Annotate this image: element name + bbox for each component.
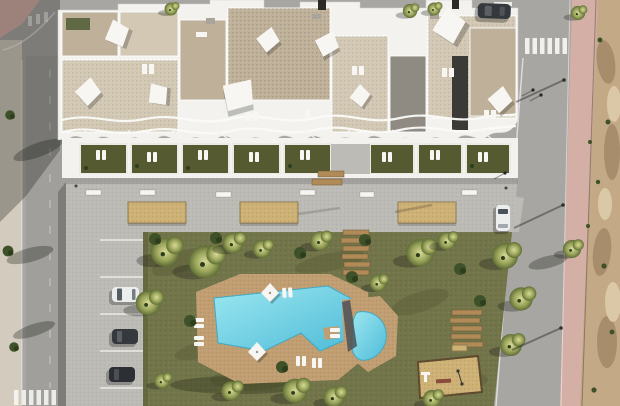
- ac-unit: [312, 14, 321, 19]
- apartment-building: [58, 0, 518, 142]
- wood-bench: [312, 179, 342, 185]
- green-roof-patch: [66, 18, 90, 30]
- balance-beam: [436, 379, 451, 384]
- garden-bench: [452, 345, 467, 351]
- chimney: [452, 0, 459, 9]
- sand-beds: [128, 202, 456, 226]
- entrance-passage: [331, 144, 370, 174]
- stairwell-block: [390, 56, 426, 132]
- aerial-render: Aerial 3D render of a new-build apartmen…: [0, 0, 620, 406]
- parked-car-dark-2: [106, 367, 135, 385]
- bollard: [75, 185, 78, 188]
- car-on-right-road: [493, 205, 510, 234]
- parked-car-white: [109, 287, 139, 305]
- bollard: [505, 187, 508, 190]
- garden-front-wall: [62, 174, 518, 178]
- communal-garden: [123, 230, 536, 406]
- parked-car-dark-1: [109, 329, 138, 347]
- car-on-top-road: [474, 3, 511, 23]
- chimney: [318, 0, 326, 10]
- promenade: [66, 171, 524, 232]
- parking-area: [66, 232, 143, 406]
- wood-bench: [318, 171, 344, 177]
- ac-unit: [206, 18, 215, 24]
- private-gardens: [80, 144, 510, 174]
